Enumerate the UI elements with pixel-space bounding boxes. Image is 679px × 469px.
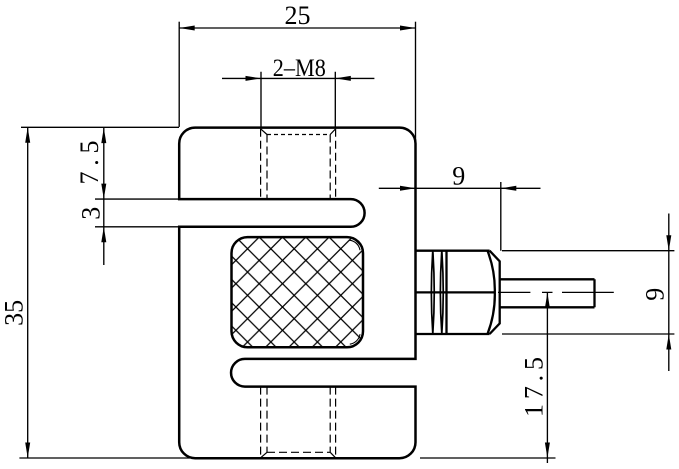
svg-text:3: 3: [77, 207, 106, 220]
svg-text:2–M8: 2–M8: [273, 55, 326, 82]
svg-text:25: 25: [285, 1, 311, 30]
svg-text:9: 9: [452, 162, 465, 191]
svg-text:7.5: 7.5: [75, 141, 104, 185]
svg-text:17.5: 17.5: [520, 357, 549, 417]
svg-text:9: 9: [641, 288, 670, 301]
svg-text:35: 35: [0, 300, 28, 326]
